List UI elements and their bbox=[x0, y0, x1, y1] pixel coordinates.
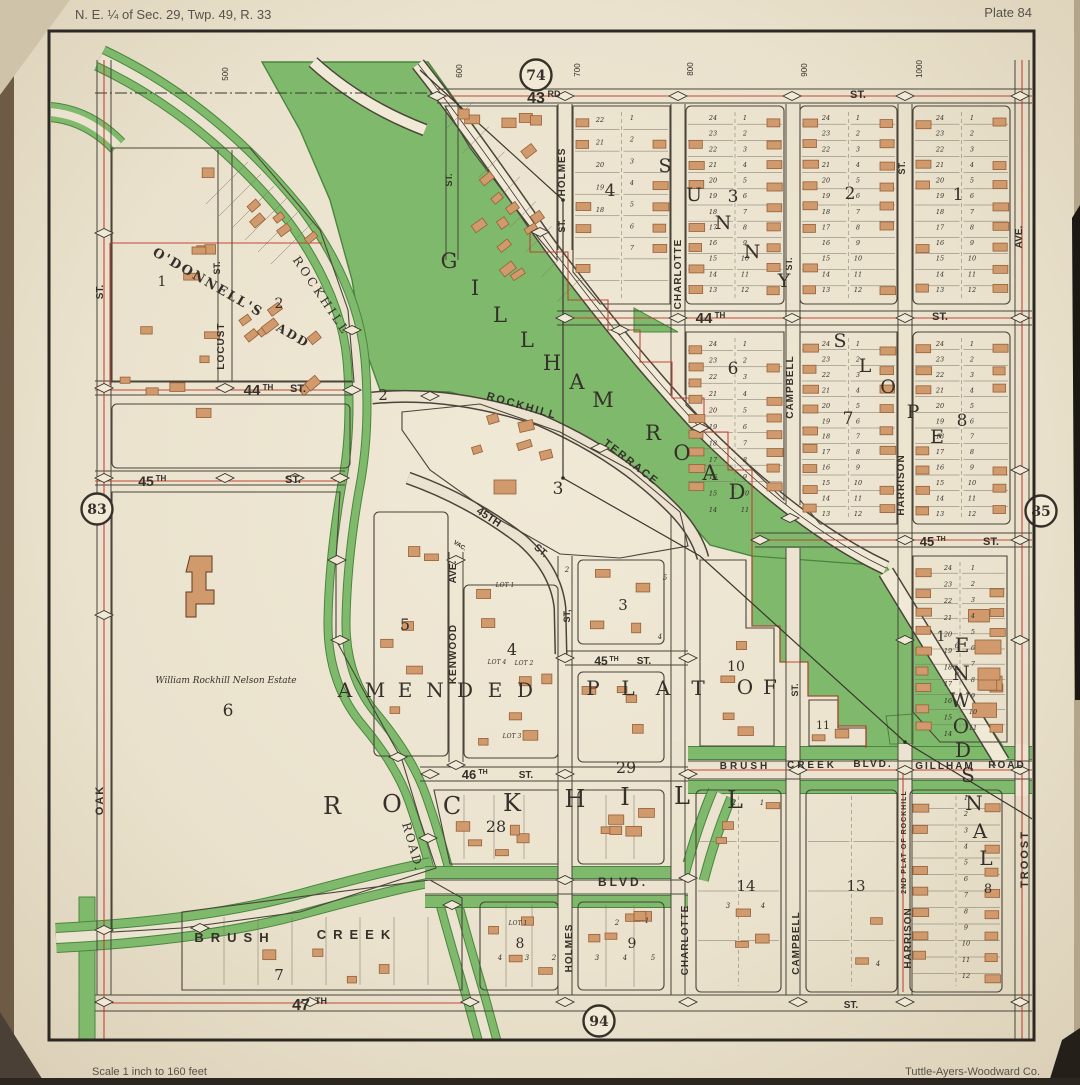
lot-number: 3 bbox=[964, 826, 968, 834]
lot-number: 4 bbox=[969, 161, 974, 169]
lot-number: 24 bbox=[708, 114, 717, 122]
lot-number: 2 bbox=[742, 357, 747, 365]
building-footprint bbox=[626, 826, 642, 836]
street-label: ST. bbox=[519, 770, 534, 781]
lot-number: 20 bbox=[821, 177, 830, 185]
lot-number: 1 bbox=[856, 114, 860, 122]
lot-number: 1 bbox=[970, 114, 974, 122]
lot-number: 3 bbox=[595, 954, 600, 962]
lot-number: 5 bbox=[630, 201, 634, 209]
building-footprint bbox=[993, 384, 1006, 392]
street-label: ST. bbox=[784, 257, 794, 270]
plate-circle-number: 74 bbox=[526, 68, 546, 84]
lot-number: 10 bbox=[854, 255, 862, 263]
address-block-number: 700 bbox=[573, 63, 582, 77]
block-number: 1 bbox=[158, 274, 167, 290]
building-footprint bbox=[803, 405, 818, 413]
street-label: ST. bbox=[212, 261, 222, 274]
lot-number: 21 bbox=[943, 614, 952, 622]
building-footprint bbox=[767, 204, 782, 212]
block-number: 2 bbox=[845, 184, 856, 204]
building-footprint bbox=[576, 264, 590, 272]
building-footprint bbox=[913, 951, 926, 959]
building-footprint bbox=[913, 909, 929, 917]
lot-number: 22 bbox=[821, 371, 830, 379]
building-footprint bbox=[205, 245, 216, 254]
building-footprint bbox=[496, 850, 509, 856]
building-footprint bbox=[803, 504, 816, 512]
lot-number: 3 bbox=[525, 954, 530, 962]
district-letter: O bbox=[382, 790, 402, 818]
lot-number: 6 bbox=[856, 417, 860, 425]
lot-number: 14 bbox=[944, 730, 952, 738]
building-footprint bbox=[689, 243, 702, 251]
street-label: 43 bbox=[527, 90, 545, 107]
lot-number: 6 bbox=[955, 642, 960, 650]
lot-number: 19 bbox=[709, 423, 717, 431]
lot-number: 3 bbox=[970, 371, 974, 379]
building-footprint bbox=[170, 383, 185, 392]
district-letter: W bbox=[950, 688, 971, 712]
building-footprint bbox=[803, 465, 817, 473]
photo-edge-bottom bbox=[0, 1078, 1080, 1085]
block-number: 7 bbox=[843, 409, 854, 429]
park-strip bbox=[79, 897, 95, 1043]
building-footprint bbox=[871, 918, 883, 925]
lot-number: 24 bbox=[708, 340, 717, 348]
building-footprint bbox=[993, 243, 1007, 251]
street-label: BRUSH bbox=[720, 761, 771, 772]
lot-number: 24 bbox=[821, 114, 830, 122]
block-number: 4 bbox=[605, 181, 616, 201]
lot-number: 9 bbox=[856, 464, 860, 472]
building-footprint bbox=[576, 140, 589, 148]
street-label: CHARLOTTE bbox=[680, 905, 691, 976]
district-letter: N bbox=[426, 678, 444, 702]
lot-number: 15 bbox=[822, 255, 830, 263]
street-label: HOLMES bbox=[557, 148, 568, 197]
building-footprint bbox=[880, 505, 895, 513]
lot-number: 9 bbox=[743, 239, 747, 247]
building-footprint bbox=[689, 286, 703, 294]
building-footprint bbox=[978, 668, 1000, 680]
lot-number: 11 bbox=[741, 506, 749, 514]
building-footprint bbox=[653, 224, 666, 232]
district-letter: Y bbox=[777, 270, 791, 292]
building-footprint bbox=[509, 955, 522, 962]
building-footprint bbox=[803, 182, 817, 190]
building-footprint bbox=[542, 674, 552, 684]
building-footprint bbox=[456, 822, 470, 832]
district-letter: M bbox=[365, 678, 385, 702]
building-footprint bbox=[916, 705, 929, 713]
lot-number: 18 bbox=[944, 664, 952, 672]
building-footprint bbox=[913, 825, 927, 833]
street-label: OAK bbox=[94, 785, 106, 815]
lot-number: 4 bbox=[963, 843, 968, 851]
district-letter: E bbox=[398, 678, 413, 702]
building-footprint bbox=[767, 364, 779, 372]
district-letter: I bbox=[620, 783, 629, 811]
building-footprint bbox=[738, 727, 753, 736]
lot-number: 8 bbox=[743, 456, 747, 464]
building-footprint bbox=[510, 825, 519, 835]
building-footprint bbox=[916, 345, 931, 353]
lot-number: 19 bbox=[596, 184, 604, 192]
lot-number: 3 bbox=[856, 371, 860, 379]
district-letter: I bbox=[471, 276, 479, 300]
lot-number: 18 bbox=[822, 433, 830, 441]
lot-number: 5 bbox=[743, 177, 747, 185]
building-footprint bbox=[689, 363, 703, 371]
lot-number: 23 bbox=[935, 130, 944, 138]
district-letter: S bbox=[833, 330, 846, 352]
building-footprint bbox=[803, 119, 818, 127]
district-letter: L bbox=[621, 676, 634, 700]
building-footprint bbox=[803, 365, 816, 373]
building-footprint bbox=[978, 679, 997, 690]
building-footprint bbox=[916, 608, 931, 616]
building-footprint bbox=[735, 941, 748, 947]
lot-number: 5 bbox=[964, 859, 968, 867]
building-footprint bbox=[767, 449, 783, 457]
building-footprint bbox=[913, 932, 928, 940]
lot-number: 1 bbox=[760, 799, 764, 807]
lot-number: 3 bbox=[743, 145, 747, 153]
block-number: 8 bbox=[984, 882, 992, 897]
building-footprint bbox=[916, 466, 929, 474]
district-letter: C bbox=[443, 792, 461, 820]
lot-number: 15 bbox=[822, 479, 830, 487]
building-footprint bbox=[408, 547, 419, 557]
lot-number: 8 bbox=[970, 223, 974, 231]
building-footprint bbox=[576, 119, 589, 127]
building-footprint bbox=[803, 160, 819, 168]
building-footprint bbox=[390, 707, 400, 714]
building-footprint bbox=[993, 344, 1008, 352]
street-label: ST. bbox=[983, 536, 999, 548]
lot-number: 3 bbox=[743, 373, 747, 381]
building-footprint bbox=[767, 141, 781, 149]
street-label: AVE. bbox=[1014, 225, 1025, 248]
district-letter: S bbox=[658, 155, 671, 177]
street-label: LOT 1 bbox=[495, 582, 515, 589]
lot-number: 8 bbox=[743, 223, 747, 231]
lot-number: 23 bbox=[821, 130, 830, 138]
lot-number: 23 bbox=[943, 581, 952, 589]
district-letter: L bbox=[520, 328, 534, 352]
lot-number: 4 bbox=[629, 179, 634, 187]
building-footprint bbox=[990, 724, 1003, 732]
building-footprint bbox=[192, 247, 206, 254]
lot-number: 2 bbox=[855, 130, 860, 138]
street-crossing bbox=[671, 862, 685, 912]
block-number: 28 bbox=[486, 817, 506, 836]
lot-number: 16 bbox=[936, 239, 944, 247]
building-footprint bbox=[689, 223, 705, 231]
district-letter: O bbox=[737, 675, 753, 699]
lot-number: 21 bbox=[595, 139, 604, 147]
lot-number: 8 bbox=[970, 448, 974, 456]
street-label: 46 bbox=[462, 767, 476, 782]
building-footprint bbox=[609, 815, 624, 824]
lot-number: 23 bbox=[821, 355, 830, 363]
street-label: RD bbox=[548, 89, 561, 99]
book-edge-left bbox=[0, 0, 14, 1085]
lot-number: 2 bbox=[564, 566, 570, 574]
lot-number: 9 bbox=[964, 923, 968, 931]
lot-number: 1 bbox=[971, 564, 975, 572]
building-footprint bbox=[610, 826, 622, 834]
lot-number: 16 bbox=[936, 464, 944, 472]
street-label: 45 bbox=[138, 473, 154, 489]
building-footprint bbox=[880, 222, 894, 230]
district-letter: H bbox=[543, 351, 561, 375]
lot-number: 5 bbox=[970, 177, 974, 185]
publisher-note: Tuttle-Ayers-Woodward Co. bbox=[905, 1066, 1040, 1078]
district-letter: O bbox=[953, 714, 969, 738]
lot-number: 11 bbox=[969, 724, 977, 732]
district-letter: R bbox=[323, 792, 342, 820]
lot-number: 5 bbox=[856, 402, 860, 410]
building-footprint bbox=[689, 346, 702, 354]
lot-number: 9 bbox=[743, 473, 747, 481]
building-footprint bbox=[916, 284, 928, 292]
street-label: 47 bbox=[292, 997, 310, 1014]
lot-number: 4 bbox=[622, 954, 627, 962]
building-footprint bbox=[767, 397, 782, 405]
street-label: ST. bbox=[95, 285, 106, 300]
street-label: 45 bbox=[594, 654, 608, 668]
building-footprint bbox=[424, 554, 438, 561]
building-footprint bbox=[202, 168, 214, 178]
building-footprint bbox=[880, 427, 893, 435]
plate-circle-83: 83 bbox=[82, 494, 113, 525]
building-footprint bbox=[458, 109, 469, 119]
lot-number: 10 bbox=[741, 489, 749, 497]
building-footprint bbox=[993, 222, 1009, 230]
block-number: 14 bbox=[736, 877, 755, 895]
lot-number: 16 bbox=[709, 239, 717, 247]
lot-number: 4 bbox=[497, 954, 502, 962]
street-label: HARRISON bbox=[903, 907, 914, 968]
lot-number: 16 bbox=[709, 473, 717, 481]
lot-number: 2 bbox=[731, 799, 737, 807]
plate-circle-number: 94 bbox=[589, 1014, 609, 1030]
building-footprint bbox=[766, 803, 780, 809]
street-label: ST, bbox=[562, 609, 572, 622]
building-footprint bbox=[993, 284, 1008, 292]
building-footprint bbox=[509, 713, 521, 720]
lot-number: 22 bbox=[943, 597, 952, 605]
building-footprint bbox=[263, 950, 276, 960]
building-footprint bbox=[985, 954, 997, 962]
building-footprint bbox=[689, 395, 702, 403]
building-footprint bbox=[632, 623, 641, 633]
lot-number: 6 bbox=[630, 222, 634, 230]
street-label: TH bbox=[715, 311, 726, 320]
lot-number: 22 bbox=[595, 116, 604, 124]
building-footprint bbox=[880, 347, 896, 355]
building-footprint bbox=[985, 932, 998, 940]
district-letter: N bbox=[715, 212, 732, 234]
lot-number: 22 bbox=[708, 145, 717, 153]
street-label: ST. bbox=[844, 1000, 859, 1011]
lot-number: 4 bbox=[742, 390, 747, 398]
building-footprint bbox=[767, 483, 782, 491]
lot-number: 15 bbox=[709, 255, 717, 263]
lot-number: 18 bbox=[936, 208, 944, 216]
lot-number: 5 bbox=[955, 669, 960, 677]
lot-number: 5 bbox=[651, 954, 656, 962]
street-label: 2ND PLAT OF ROCKHILL bbox=[901, 790, 908, 893]
street-label: TH bbox=[478, 769, 487, 776]
lot-number: 22 bbox=[708, 373, 717, 381]
building-footprint bbox=[880, 405, 893, 413]
street-label: LOT 2 bbox=[514, 660, 534, 667]
street-label: HARRISON bbox=[896, 454, 907, 515]
lot-number: 17 bbox=[944, 680, 953, 688]
building-footprint bbox=[916, 386, 931, 394]
lot-number: 4 bbox=[970, 612, 975, 620]
street-label: LOCUST bbox=[216, 322, 227, 369]
address-block-number: 500 bbox=[221, 67, 230, 81]
lot-number: 21 bbox=[708, 161, 717, 169]
lot-number: 21 bbox=[935, 161, 944, 169]
lot-number: 5 bbox=[970, 402, 974, 410]
lot-number: 11 bbox=[968, 495, 976, 503]
building-footprint bbox=[313, 949, 323, 956]
lot-number: 13 bbox=[822, 510, 830, 518]
building-footprint bbox=[993, 367, 1005, 375]
street-label: William Rockhill Nelson Estate bbox=[155, 676, 296, 686]
block-number: 6 bbox=[728, 359, 739, 379]
building-footprint bbox=[200, 356, 209, 363]
lot-number: 5 bbox=[663, 574, 668, 582]
building-footprint bbox=[767, 223, 780, 231]
building-footprint bbox=[605, 933, 617, 939]
building-footprint bbox=[141, 327, 152, 334]
building-footprint bbox=[736, 641, 746, 649]
street-label: TH bbox=[936, 536, 945, 543]
block-number: 6 bbox=[223, 701, 234, 721]
lot-number: 9 bbox=[970, 464, 974, 472]
building-footprint bbox=[916, 590, 931, 598]
building-footprint bbox=[993, 484, 1006, 492]
block-number: 8 bbox=[516, 936, 525, 952]
plate-circle-74: 74 bbox=[521, 60, 552, 91]
district-letter: S bbox=[961, 763, 975, 787]
lot-number: 13 bbox=[709, 286, 717, 294]
lot-number: 3 bbox=[726, 902, 731, 910]
street-label: TH bbox=[609, 656, 618, 663]
block-number: 3 bbox=[618, 596, 628, 614]
lot-number: 10 bbox=[968, 479, 976, 487]
street-label: ST. bbox=[444, 173, 454, 186]
street-label: CAMPBELL bbox=[785, 355, 796, 419]
building-footprint bbox=[736, 909, 750, 916]
lot-number: 15 bbox=[944, 713, 952, 721]
district-letter: E bbox=[488, 678, 503, 702]
lot-number: 21 bbox=[821, 161, 830, 169]
lot-number: 1 bbox=[970, 340, 974, 348]
lot-number: 3 bbox=[630, 157, 634, 165]
building-footprint bbox=[913, 887, 928, 895]
lot-number: 4 bbox=[875, 960, 880, 968]
building-footprint bbox=[653, 182, 668, 190]
district-letter: D bbox=[517, 678, 533, 702]
street-label: TH bbox=[263, 383, 274, 392]
lot-number: 17 bbox=[936, 448, 945, 456]
district-letter: O bbox=[673, 441, 690, 465]
lot-number: 15 bbox=[709, 489, 717, 497]
district-letter: U bbox=[686, 184, 702, 206]
building-footprint bbox=[489, 926, 499, 934]
lot-number: 15 bbox=[936, 255, 944, 263]
district-letter: H bbox=[565, 785, 586, 813]
lot-number: 12 bbox=[741, 286, 749, 294]
building-footprint bbox=[913, 804, 929, 812]
building-footprint bbox=[723, 713, 734, 720]
lot-number: 9 bbox=[856, 239, 860, 247]
building-footprint bbox=[120, 377, 130, 383]
lot-number: 11 bbox=[741, 270, 749, 278]
building-footprint bbox=[653, 203, 669, 211]
building-footprint bbox=[723, 822, 734, 830]
building-footprint bbox=[689, 140, 702, 148]
plat-map: N. E. ¼ of Sec. 29, Twp. 49, R. 33 Plate… bbox=[0, 0, 1080, 1085]
building-footprint bbox=[916, 647, 932, 655]
building-footprint bbox=[721, 676, 735, 683]
lot-number: 1 bbox=[630, 114, 634, 122]
lot-number: 3 bbox=[856, 145, 860, 153]
street-label: HOLMES bbox=[564, 924, 575, 973]
building-footprint bbox=[993, 118, 1006, 126]
lot-number: 5 bbox=[856, 177, 860, 185]
lot-number: 14 bbox=[709, 506, 717, 514]
building-footprint bbox=[913, 866, 927, 874]
address-block-number: 600 bbox=[455, 64, 464, 78]
lot-number: 4 bbox=[855, 386, 860, 394]
building-footprint bbox=[835, 729, 848, 738]
lot-number: 22 bbox=[821, 145, 830, 153]
building-footprint bbox=[347, 976, 356, 983]
building-footprint bbox=[803, 344, 819, 352]
street-label: ST. bbox=[557, 219, 567, 232]
lot-number: 18 bbox=[596, 206, 604, 214]
street-label: CREEK bbox=[787, 760, 837, 771]
lot-number: 20 bbox=[935, 402, 944, 410]
building-footprint bbox=[880, 367, 894, 375]
lot-number: 13 bbox=[822, 286, 830, 294]
block-number: 8 bbox=[957, 411, 968, 431]
lot-number: 12 bbox=[962, 972, 970, 980]
lot-number: 21 bbox=[708, 390, 717, 398]
street-label: TROOST bbox=[1019, 830, 1031, 888]
building-footprint bbox=[477, 589, 491, 598]
street-label: CAMPBELL bbox=[791, 911, 802, 975]
plate-circle-85: 85 bbox=[1026, 496, 1057, 527]
district-letter: A bbox=[655, 676, 671, 700]
block-number: 9 bbox=[628, 936, 637, 952]
building-footprint bbox=[916, 684, 931, 692]
building-footprint bbox=[856, 958, 869, 964]
block-number: 2 bbox=[275, 296, 284, 312]
building-footprint bbox=[916, 447, 929, 455]
address-block-number: 1000 bbox=[915, 60, 924, 78]
lot-number: 12 bbox=[854, 286, 862, 294]
lot-number: 8 bbox=[971, 676, 975, 684]
